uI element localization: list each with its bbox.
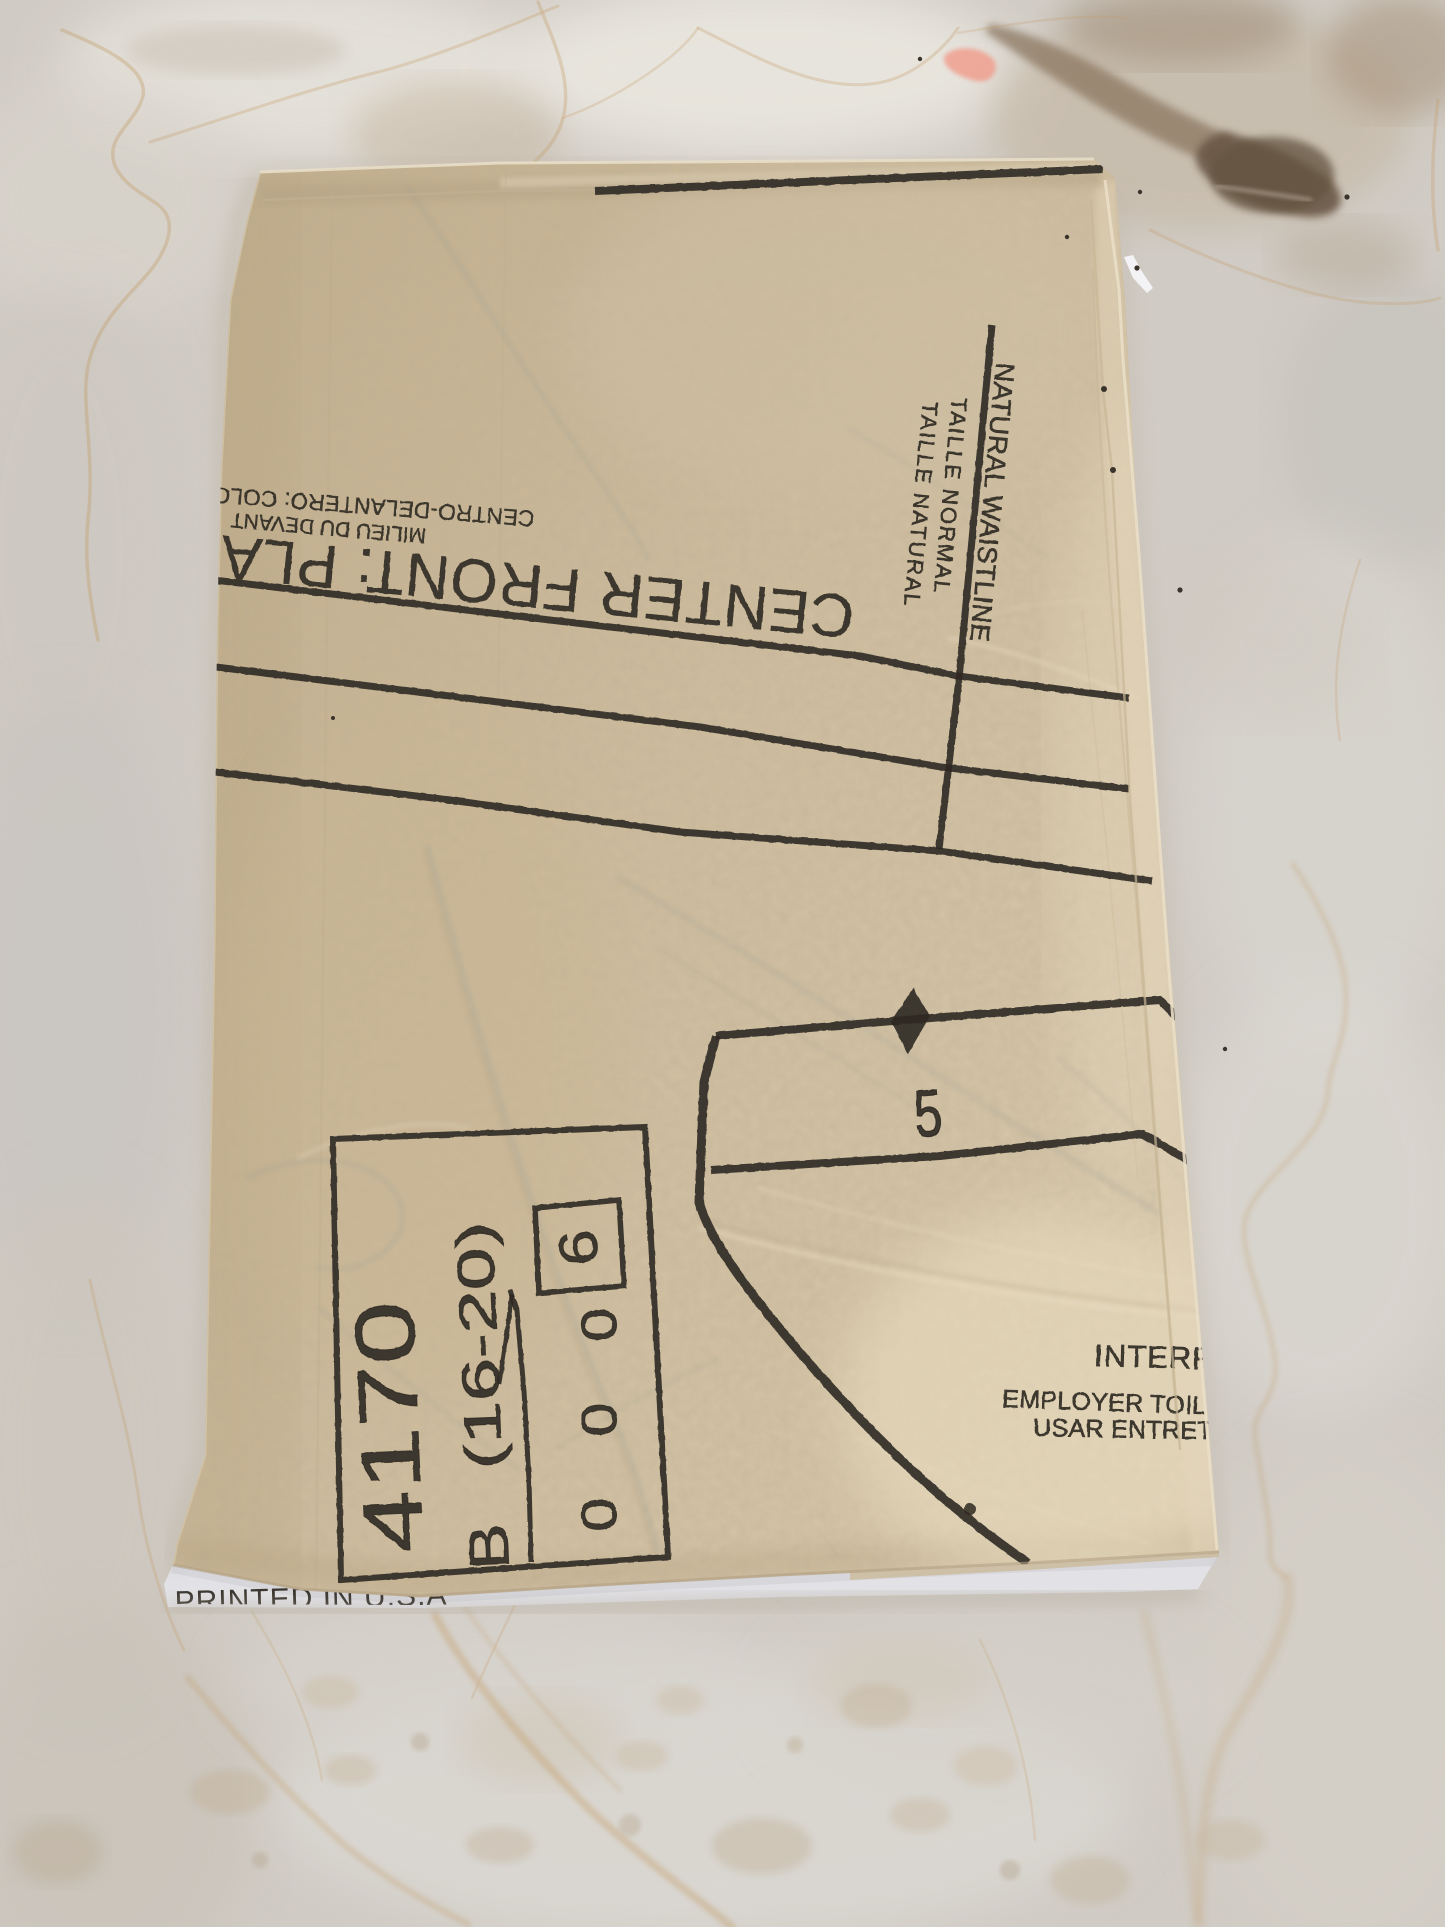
svg-text:4170: 4170 [337,1299,441,1555]
svg-text:0: 0 [570,1307,627,1343]
svg-text:5: 5 [912,1075,945,1151]
svg-text:B: B [456,1523,521,1572]
svg-text:(16-20): (16-20) [446,1221,514,1471]
svg-text:0: 0 [570,1402,627,1438]
svg-text:USAR ENTRETE: USAR ENTRETE [1033,1414,1230,1445]
svg-text:0: 0 [570,1497,627,1533]
svg-text:6: 6 [548,1229,609,1267]
